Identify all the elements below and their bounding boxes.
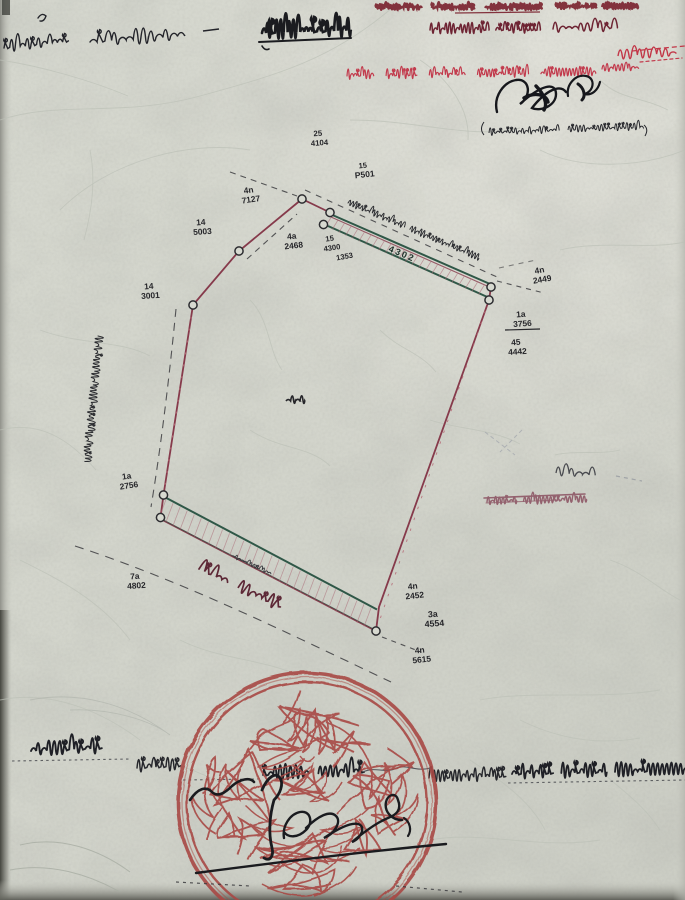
svg-text:5003: 5003: [193, 226, 213, 237]
svg-text:3756: 3756: [513, 318, 533, 329]
svg-text:4104: 4104: [311, 138, 330, 148]
svg-text:25: 25: [313, 129, 323, 139]
svg-text:2468: 2468: [284, 239, 304, 251]
svg-text:4442: 4442: [508, 346, 528, 357]
svg-text:P501: P501: [354, 168, 375, 180]
svg-text:3001: 3001: [141, 290, 161, 301]
svg-text:2452: 2452: [405, 589, 425, 601]
svg-text:4554: 4554: [424, 618, 444, 629]
svg-text:5615: 5615: [412, 653, 432, 665]
svg-text:4802: 4802: [127, 580, 147, 591]
